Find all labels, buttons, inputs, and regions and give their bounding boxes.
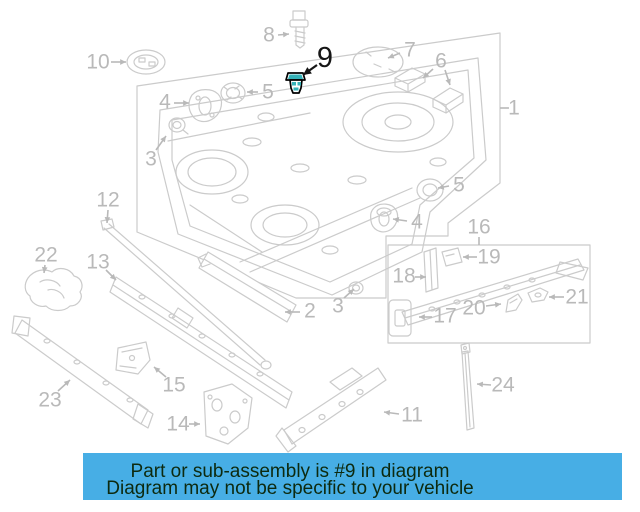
svg-text:22: 22 [34,244,57,267]
part-label-3: 3 [145,136,166,171]
svg-text:4: 4 [411,211,423,234]
svg-text:14: 14 [166,413,190,436]
parts-diagram-canvas: 1233445567891011121314151617181920212223… [0,0,640,512]
part-label-8: 8 [263,24,289,47]
part-label-11: 11 [384,404,423,427]
part-label-1: 1 [500,97,520,120]
svg-text:8: 8 [263,24,275,47]
svg-text:23: 23 [38,389,61,412]
part-label-10: 10 [86,51,126,74]
svg-text:21: 21 [565,286,588,309]
svg-text:10: 10 [86,51,109,74]
svg-text:17: 17 [433,305,456,328]
svg-text:5: 5 [453,174,465,197]
info-banner-text: Part or sub-assembly is #9 in diagram Di… [83,463,497,497]
svg-text:7: 7 [404,39,416,62]
svg-text:5: 5 [262,81,274,104]
part-label-18: 18 [392,265,426,288]
svg-text:11: 11 [401,404,423,427]
part-label-21: 21 [549,286,589,309]
part-label-19: 19 [463,246,501,269]
part-label-9: 9 [303,42,333,75]
svg-text:9: 9 [317,42,333,74]
parts-diagram-image: 1233445567891011121314151617181920212223… [0,0,640,512]
svg-text:3: 3 [145,148,157,171]
banner-line-2: Diagram may not be specific to your vehi… [83,480,497,497]
svg-text:4: 4 [159,91,171,114]
part-label-14: 14 [166,413,200,436]
svg-text:3: 3 [332,295,344,318]
svg-text:20: 20 [462,297,485,320]
highlighted-part-9-clip [286,73,305,93]
part-label-15: 15 [154,367,186,397]
part-label-12: 12 [96,189,119,224]
svg-text:18: 18 [392,265,415,288]
part-label-5: 5 [247,81,274,104]
part-label-20: 20 [462,297,501,320]
part-label-13: 13 [86,251,116,281]
svg-text:16: 16 [467,216,490,239]
svg-text:1: 1 [508,97,520,120]
part-label-16: 16 [467,216,490,246]
svg-text:24: 24 [491,374,515,397]
svg-text:2: 2 [304,300,316,323]
info-banner: Part or sub-assembly is #9 in diagram Di… [83,453,622,500]
svg-text:6: 6 [435,50,447,73]
part-label-24: 24 [477,374,515,397]
part-label-23: 23 [38,380,70,412]
part-label-4: 4 [159,91,189,114]
part-label-6: 6 [423,50,451,86]
part-label-22: 22 [34,244,57,274]
svg-text:19: 19 [477,246,500,269]
svg-text:12: 12 [96,189,119,212]
